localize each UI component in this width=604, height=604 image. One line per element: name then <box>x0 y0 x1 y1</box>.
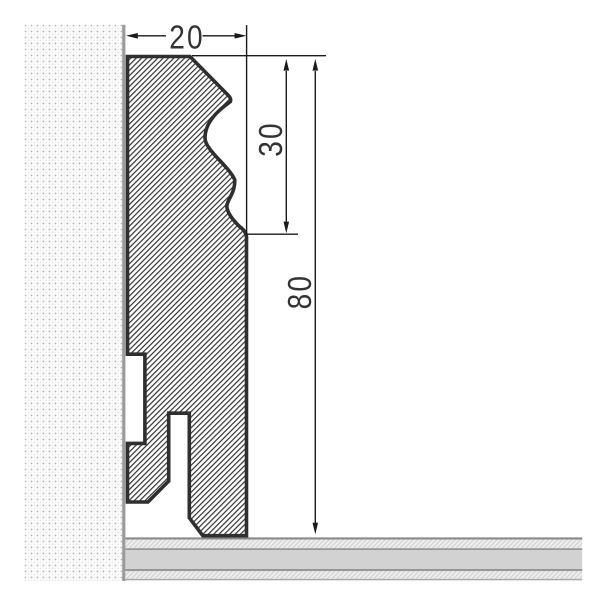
svg-text:80: 80 <box>282 274 319 309</box>
svg-text:30: 30 <box>253 121 290 156</box>
svg-text:20: 20 <box>169 19 204 56</box>
